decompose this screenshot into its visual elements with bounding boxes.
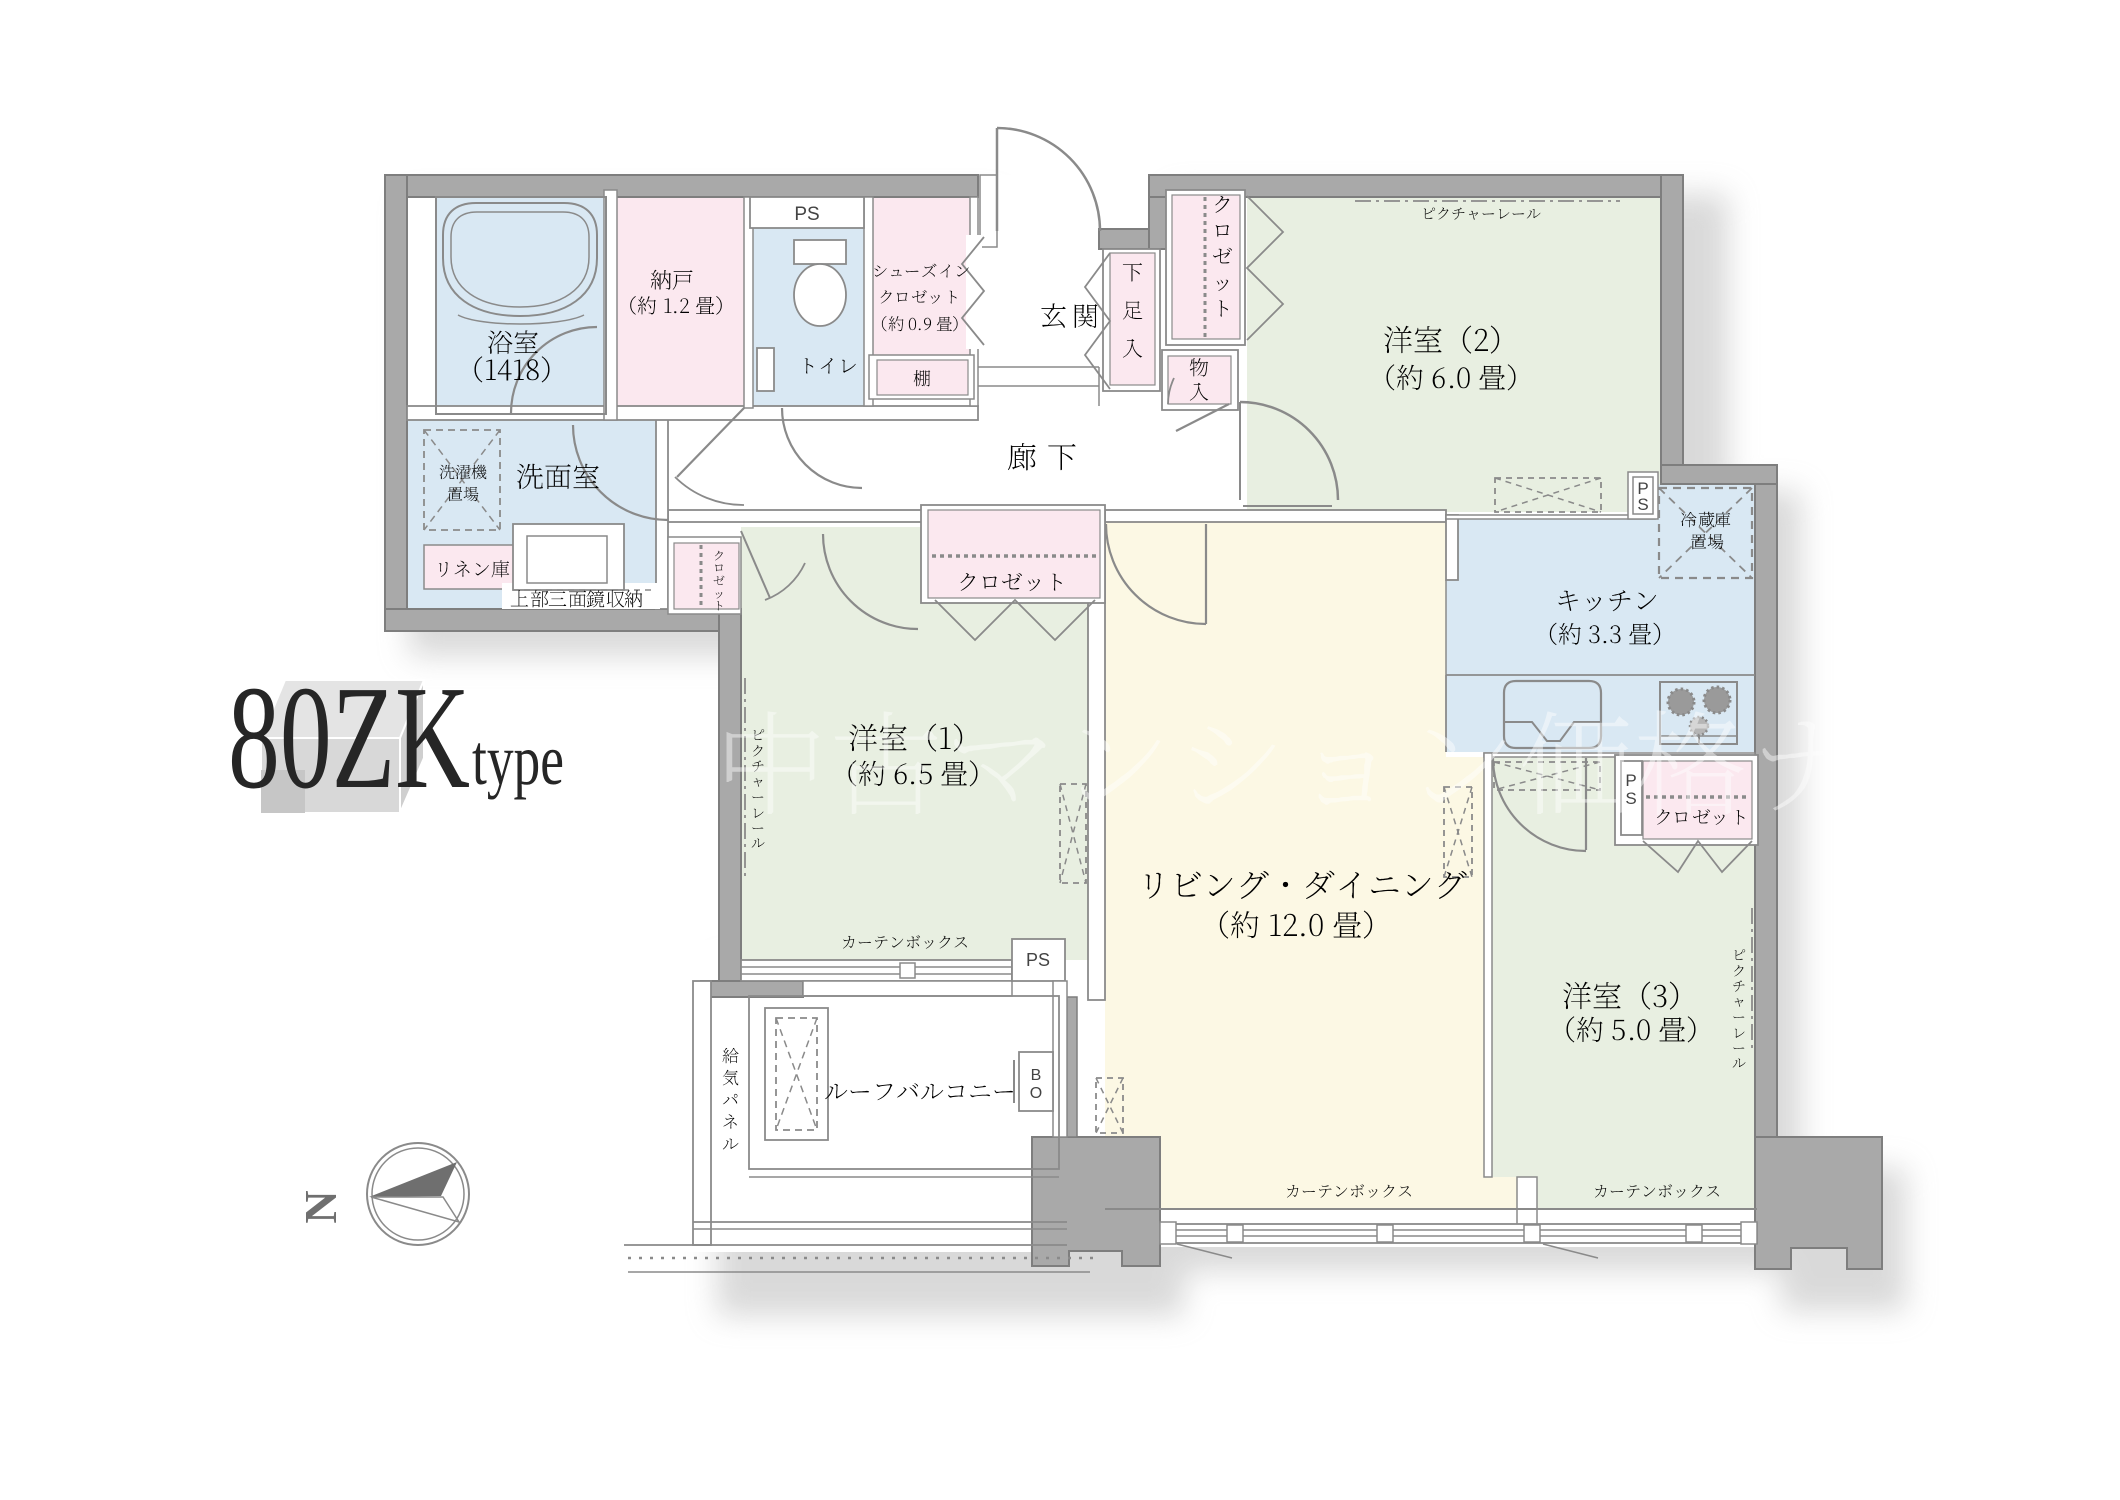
svg-text:PS: PS [1026,950,1050,970]
svg-text:80ZK: 80ZK [228,656,470,820]
svg-text:PS: PS [794,204,819,225]
svg-text:O: O [1030,1085,1042,1102]
svg-text:S: S [1637,495,1648,514]
svg-text:S: S [1625,789,1636,808]
svg-text:type: type [472,720,564,800]
svg-text:N: N [295,1190,346,1223]
svg-text:P: P [1625,771,1636,790]
svg-text:B: B [1031,1067,1042,1084]
